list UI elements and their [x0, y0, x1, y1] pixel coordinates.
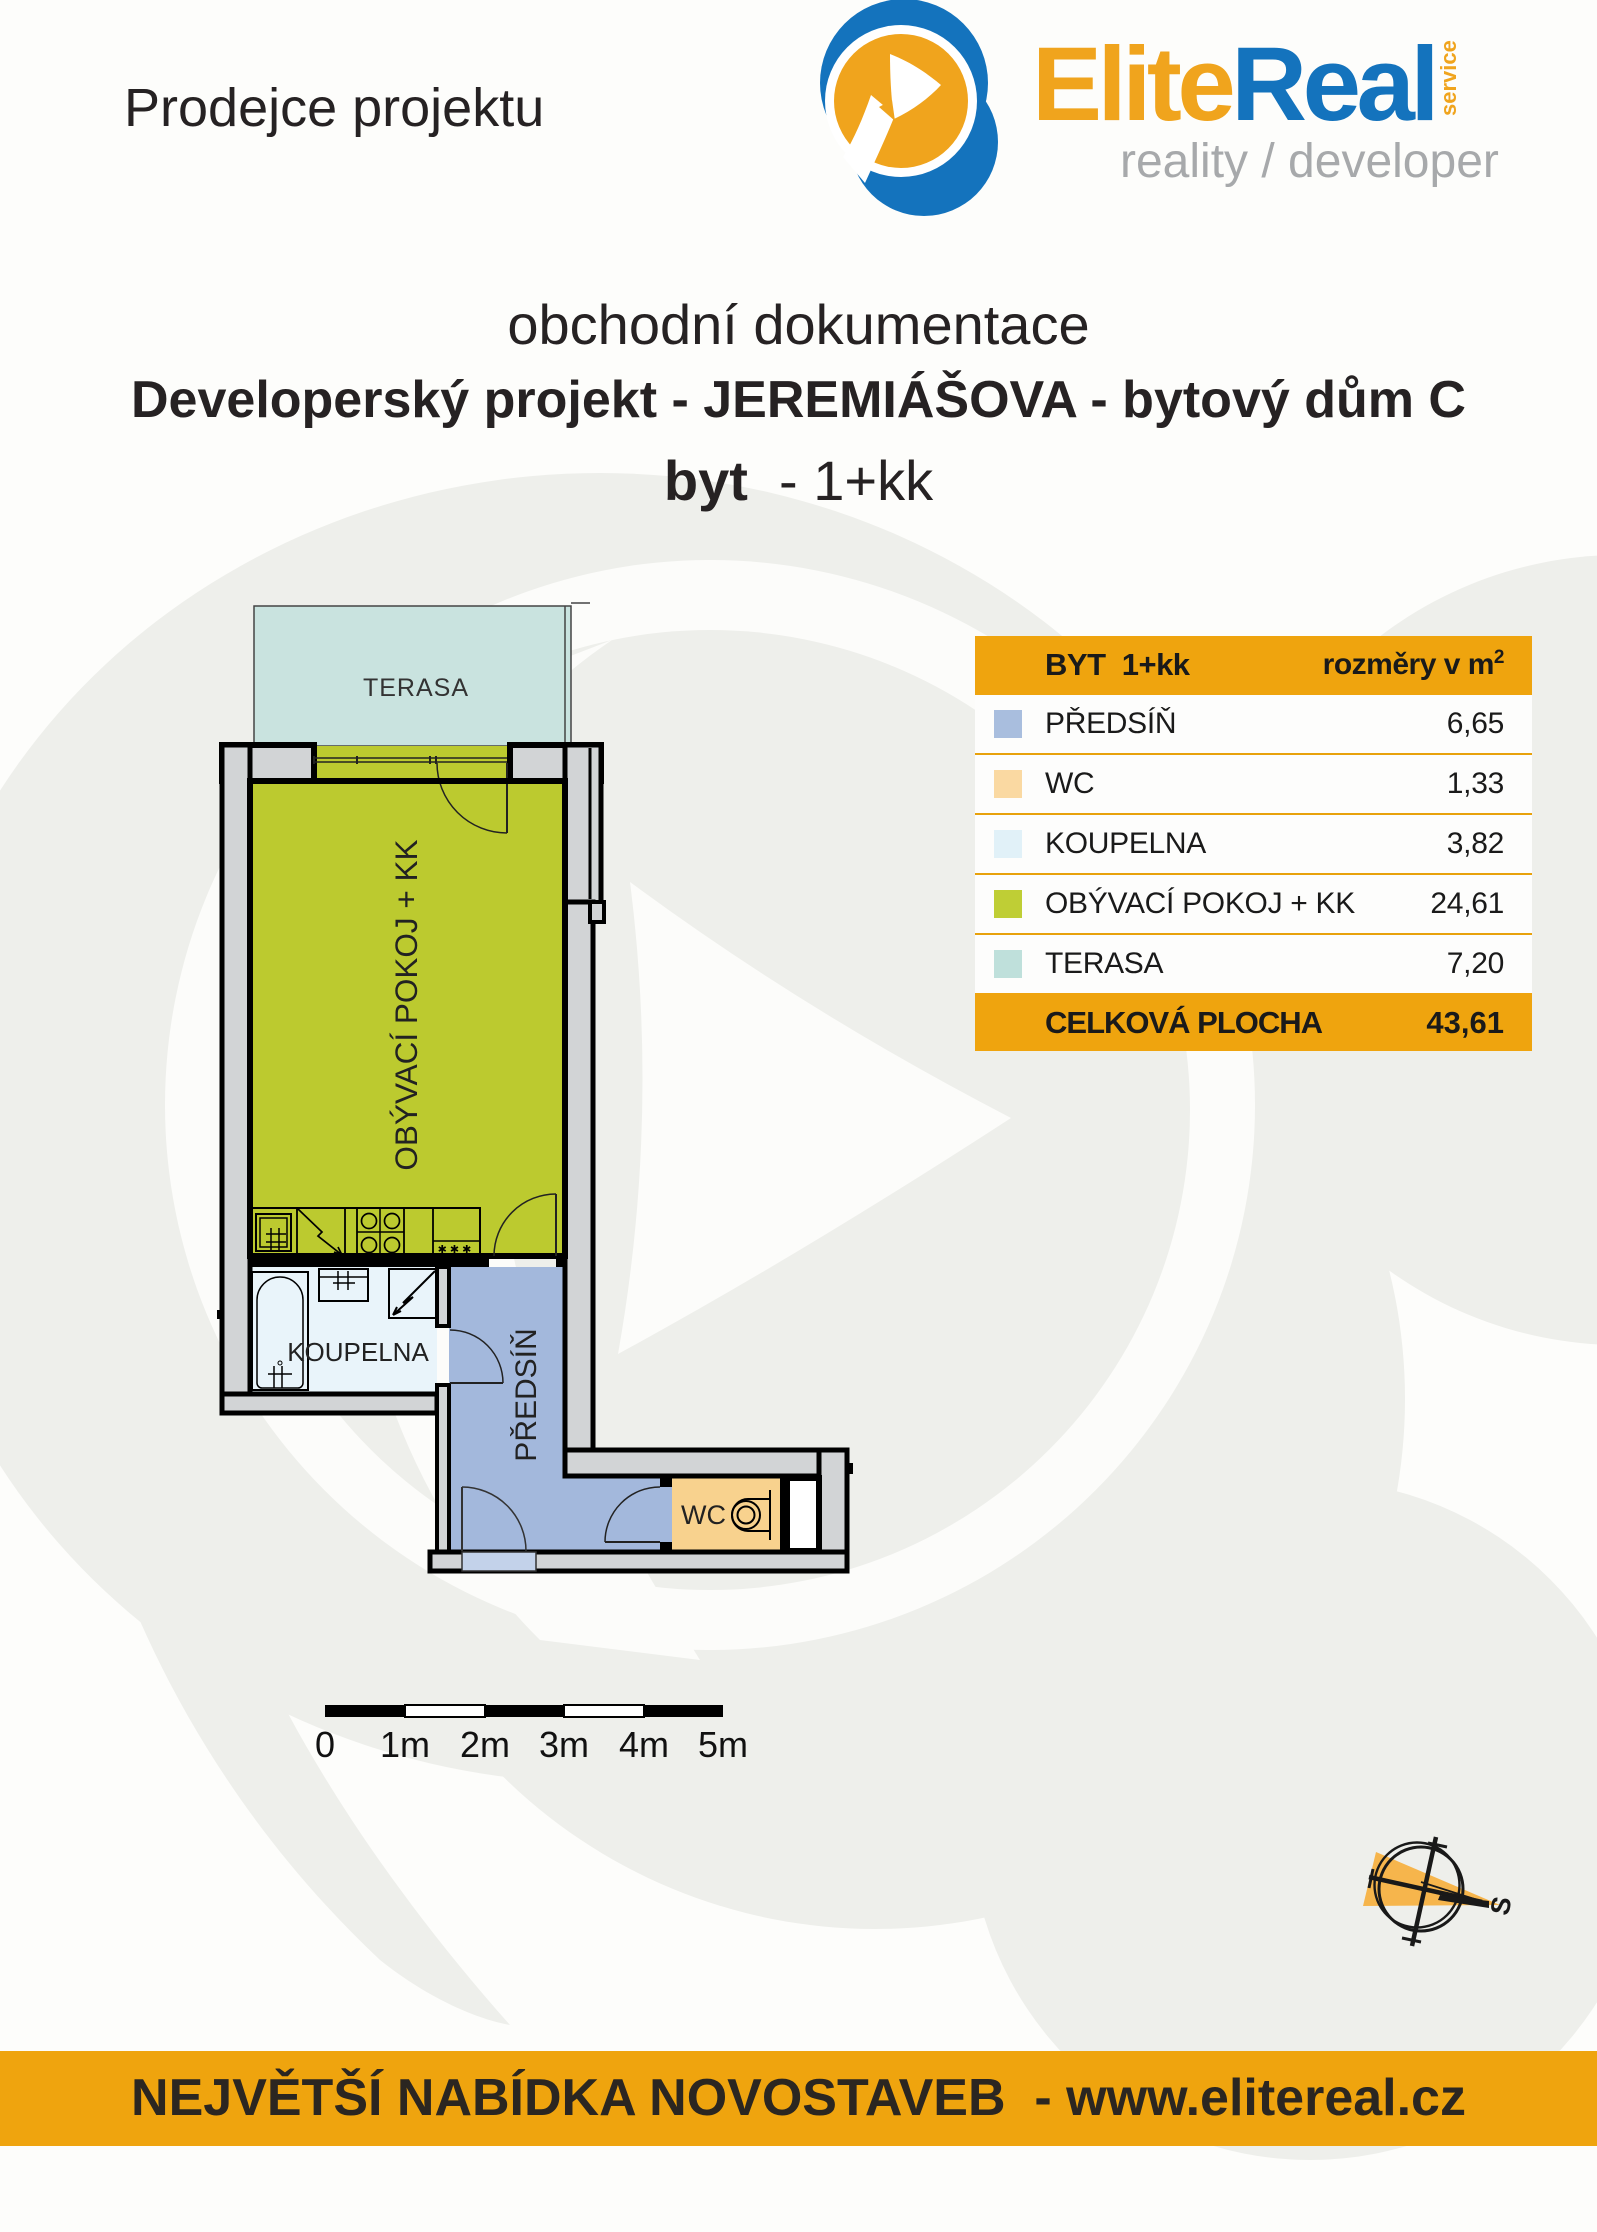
svg-text:2m: 2m	[460, 1724, 510, 1765]
svg-text:1m: 1m	[380, 1724, 430, 1765]
svg-text:✱✱✱: ✱✱✱	[438, 1244, 475, 1256]
svg-text:S: S	[1485, 1894, 1518, 1918]
svg-text:5m: 5m	[698, 1724, 748, 1765]
svg-text:OBÝVACÍ POKOJ + KK: OBÝVACÍ POKOJ + KK	[388, 839, 424, 1170]
svg-text:3m: 3m	[539, 1724, 589, 1765]
svg-text:0: 0	[315, 1724, 335, 1765]
svg-text:PŘEDSÍŇ: PŘEDSÍŇ	[510, 1328, 543, 1461]
svg-text:4m: 4m	[619, 1724, 669, 1765]
svg-text:KOUPELNA: KOUPELNA	[287, 1337, 429, 1367]
svg-text:TERASA: TERASA	[363, 674, 469, 702]
svg-text:WC: WC	[681, 1500, 726, 1530]
